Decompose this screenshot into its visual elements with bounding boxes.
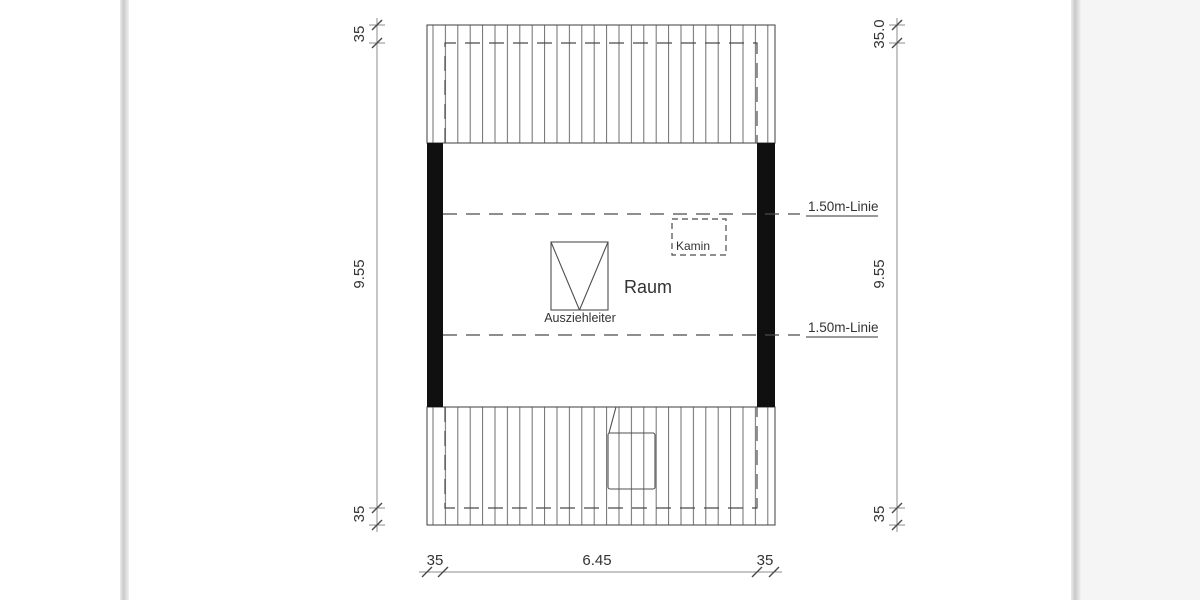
page-edge-right [1071, 0, 1081, 600]
room-label: Raum [624, 277, 672, 297]
roof-hatch-bottom [427, 407, 775, 525]
right-margin-area [1081, 0, 1200, 600]
dim-bottom-width: 6.45 [582, 552, 611, 569]
dim-left-bottom: 35 [351, 506, 368, 523]
dim-bottom-right-eave: 35 [757, 552, 774, 569]
dim-left-top: 35 [351, 26, 368, 43]
page-edge-left [120, 0, 129, 600]
dim-right-top: 35.0 [871, 19, 888, 48]
floor-plan-canvas: 1.50m-Linie 1.50m-Linie Kamin Ausziehlei… [0, 0, 1200, 600]
wall-right [757, 143, 775, 407]
wall-left [427, 143, 443, 407]
dim-bottom-left-eave: 35 [427, 552, 444, 569]
headroom-line-top-label: 1.50m-Linie [808, 199, 879, 214]
dim-right-height: 9.55 [871, 259, 888, 288]
ladder-label: Ausziehleiter [544, 311, 616, 325]
dim-right-bottom: 35 [871, 506, 888, 523]
drawing-page: 1.50m-Linie 1.50m-Linie Kamin Ausziehlei… [0, 0, 1200, 600]
headroom-line-bottom-label: 1.50m-Linie [808, 320, 879, 335]
dim-left-height: 9.55 [351, 259, 368, 288]
chimney-label: Kamin [676, 239, 710, 253]
